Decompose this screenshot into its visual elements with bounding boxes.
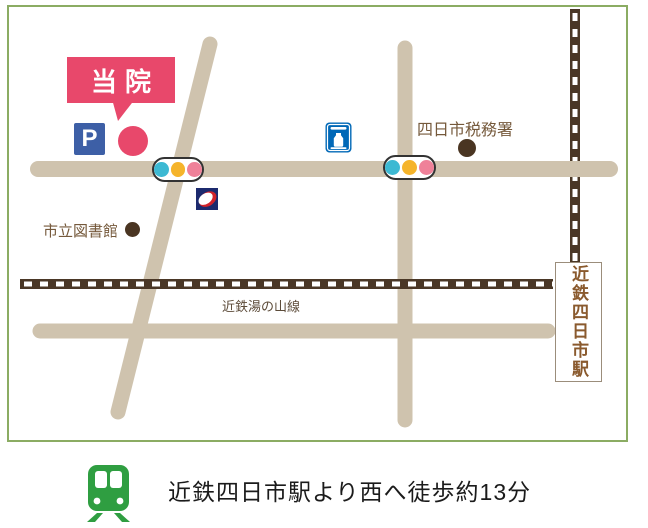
parking-icon-label: P	[81, 125, 97, 153]
signal-pink-light	[187, 162, 202, 177]
yunoyama-line-label: 近鉄湯の山線	[222, 296, 300, 315]
caption-text: 近鉄四日市駅より西へ徒歩約13分	[168, 477, 531, 507]
access-map-page: 当院 P 市立図書館 四日市税務署 近鉄湯の山線 近鉄四日市駅	[0, 0, 648, 528]
traffic-signal-icon-west	[152, 157, 204, 182]
library-label: 市立図書館	[43, 220, 118, 241]
signal-yellow-light	[171, 162, 186, 177]
signal-pink-light	[419, 160, 434, 175]
convenience-store-icon	[196, 188, 218, 210]
clinic-flag-label: 当院	[83, 62, 159, 99]
station-box: 近鉄四日市駅	[555, 262, 602, 382]
signal-yellow-light	[402, 160, 417, 175]
signal-cyan-light	[154, 162, 169, 177]
clinic-flag: 当院	[67, 57, 175, 103]
clinic-location-marker	[118, 126, 148, 156]
tax-office-label: 四日市税務署	[417, 116, 513, 140]
traffic-signal-icon-east	[383, 155, 436, 180]
station-label: 近鉄四日市駅	[566, 265, 591, 379]
tax-office-marker	[458, 139, 476, 157]
train-icon	[85, 465, 132, 522]
library-marker	[125, 222, 140, 237]
parking-icon: P	[74, 123, 105, 155]
lawson-station-icon	[325, 122, 352, 153]
signal-cyan-light	[385, 160, 400, 175]
